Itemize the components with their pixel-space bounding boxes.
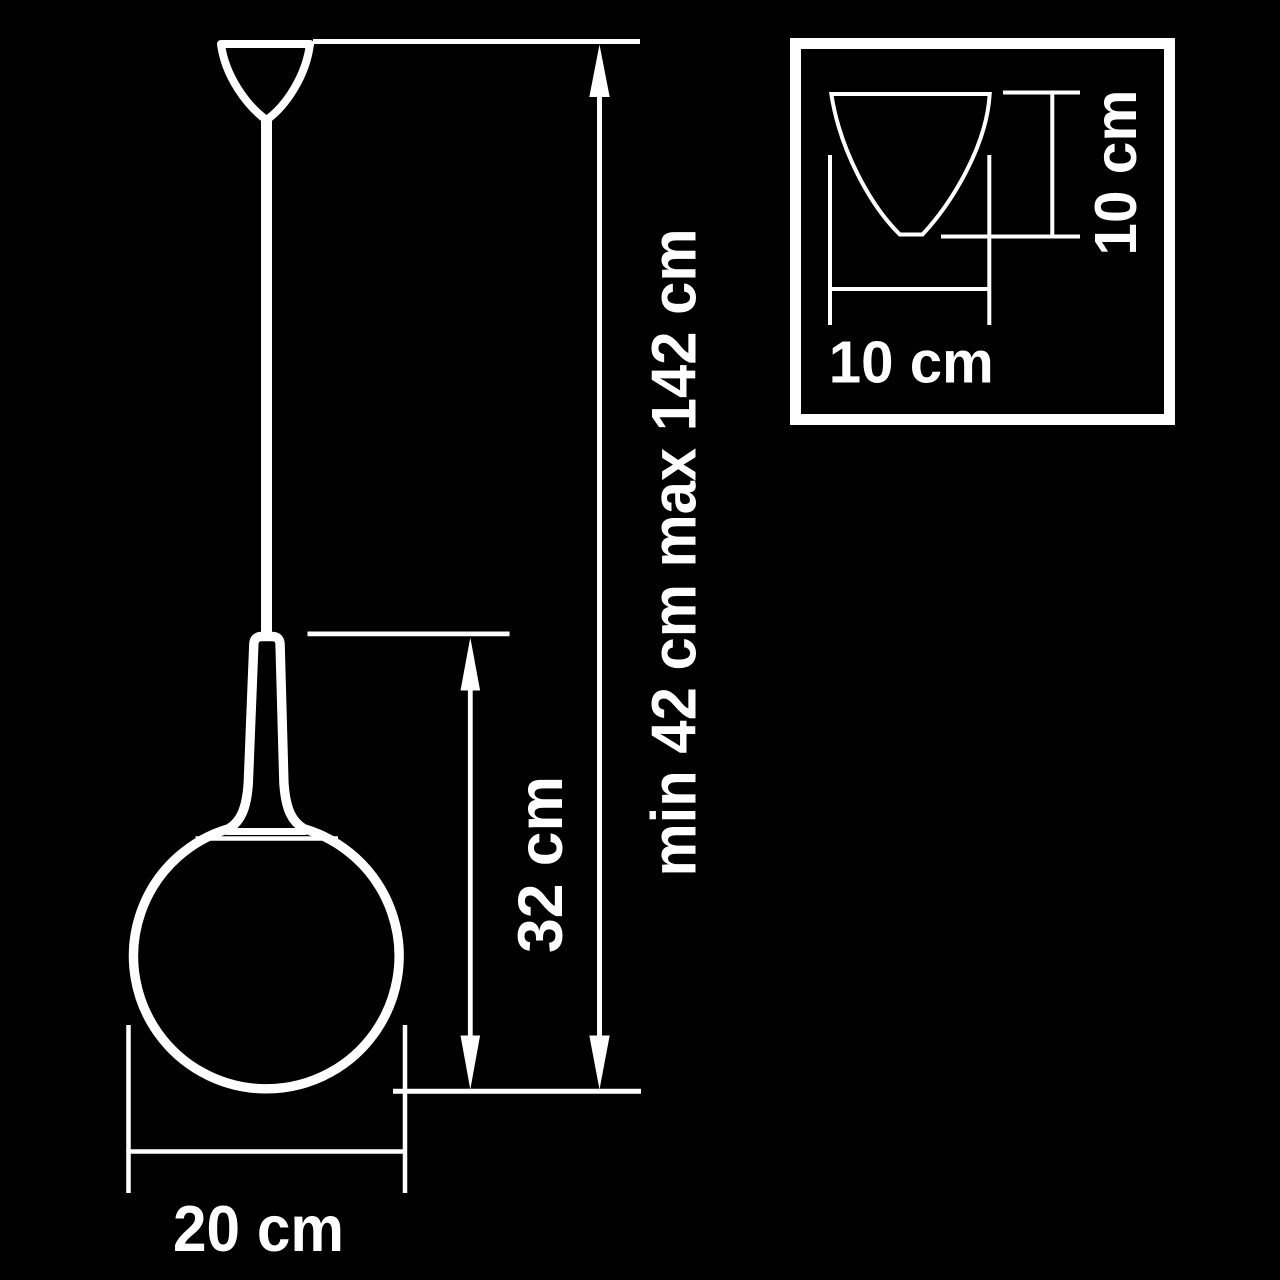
svg-text:32 cm: 32 cm [506, 776, 576, 953]
svg-text:10 cm: 10 cm [829, 330, 994, 396]
svg-text:10 cm: 10 cm [1083, 90, 1149, 256]
svg-text:min 42 cm max 142 cm: min 42 cm max 142 cm [639, 229, 709, 877]
svg-text:20 cm: 20 cm [173, 1192, 344, 1265]
